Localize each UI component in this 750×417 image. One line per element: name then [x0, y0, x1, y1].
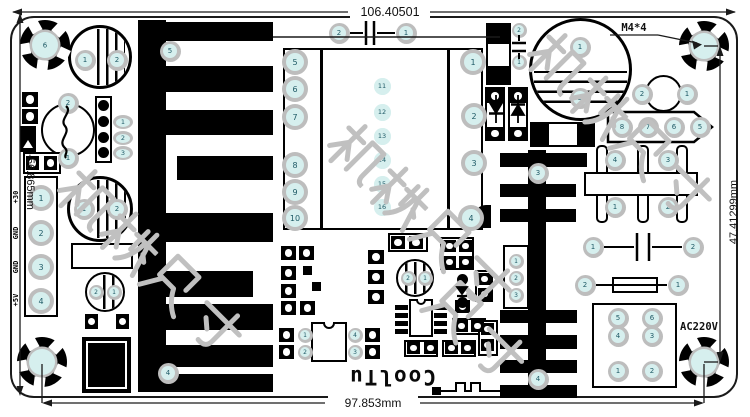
- pad: 10: [282, 205, 308, 231]
- pad: 5: [690, 117, 711, 138]
- pad: 2: [107, 50, 128, 71]
- footprint-block: [532, 124, 549, 145]
- mount-spec-label: M4*4: [608, 22, 660, 34]
- footprint-pad: [487, 89, 503, 103]
- footprint-pad: [510, 127, 526, 140]
- footprint-pad: [455, 320, 468, 332]
- pad: 1: [608, 361, 629, 382]
- pad: 1: [107, 285, 122, 300]
- to220-body: [311, 322, 347, 362]
- pad: 1: [418, 271, 433, 286]
- pad: 1: [509, 254, 524, 269]
- output-pin-label-2: GND: [12, 218, 22, 248]
- pad: 2: [570, 88, 591, 109]
- footprint-outline: [612, 277, 658, 293]
- footprint-block: [520, 387, 529, 395]
- footprint-pad: [279, 328, 294, 342]
- footprint-pad: [391, 236, 405, 249]
- footprint-block: [488, 66, 509, 85]
- pad: 2: [461, 103, 487, 129]
- footprint-pad: [300, 301, 315, 315]
- mount-hole: [676, 18, 732, 74]
- pad: 3: [509, 288, 524, 303]
- pad: 2: [298, 345, 313, 360]
- pad: 3: [461, 150, 487, 176]
- footprint-hole: [98, 116, 109, 127]
- pad: 1: [605, 197, 626, 218]
- footprint-pad: [478, 273, 491, 285]
- pad: 4: [28, 288, 54, 314]
- pad: 2: [658, 197, 679, 218]
- ac-input-label: AC220V: [672, 321, 726, 333]
- pad: 2: [632, 84, 653, 105]
- footprint-pad: [368, 290, 384, 304]
- footprint-block: [577, 124, 593, 145]
- pad: 1: [668, 275, 689, 296]
- output-pin-label-4: +5V: [12, 285, 22, 315]
- footprint-pad: [365, 328, 380, 342]
- mount-hole: [676, 334, 732, 390]
- pad: 4: [348, 328, 363, 343]
- pad: 2: [107, 199, 128, 220]
- soic8-notch: [416, 299, 426, 305]
- pad: 1: [570, 37, 591, 58]
- pad: 1: [396, 23, 417, 44]
- footprint-pad: [407, 342, 420, 354]
- pad: 15: [374, 176, 391, 193]
- relay-block: [82, 337, 131, 393]
- footprint-pad: [409, 236, 423, 249]
- footprint-hole: [98, 132, 109, 143]
- footprint-pad: [281, 246, 296, 260]
- pad: 2: [642, 361, 663, 382]
- pad: 2: [512, 23, 527, 38]
- pad: 1: [460, 49, 486, 75]
- pad: 3: [348, 345, 363, 360]
- footprint-pad: [481, 339, 494, 351]
- pad: 2: [58, 93, 79, 114]
- footprint-pad: [116, 314, 129, 329]
- brand-text: CoolTu: [333, 365, 451, 389]
- pad: 1: [75, 50, 96, 71]
- pad: 3: [113, 146, 133, 160]
- footprint-outline: [71, 243, 133, 269]
- pad: 4: [608, 326, 629, 347]
- pad: 3: [658, 150, 679, 171]
- pad: 4: [605, 150, 626, 171]
- footprint-hole: [98, 147, 109, 158]
- footprint-pad: [445, 342, 458, 354]
- pad: 1: [677, 84, 698, 105]
- footprint-pad: [299, 246, 314, 260]
- mount-hole: [14, 334, 70, 390]
- dimension-right: 47.41299mm: [728, 172, 740, 252]
- ac-input-connector: [592, 303, 677, 388]
- footprint-pad: [459, 240, 472, 252]
- footprint-pad: [443, 240, 456, 252]
- footprint-pad: [487, 127, 503, 140]
- footprint-pad: [481, 323, 494, 335]
- footprint-pad: [424, 342, 437, 354]
- footprint-pad: [22, 92, 38, 107]
- footprint-pad: [368, 270, 384, 284]
- transformer-divider-right: [447, 48, 450, 230]
- pad: 7: [638, 117, 659, 138]
- pad: 16: [374, 199, 391, 216]
- pad: 4: [528, 369, 549, 390]
- pad: 14: [374, 152, 391, 169]
- pad: 6: [664, 117, 685, 138]
- footprint-block: [312, 282, 321, 291]
- pad: 1: [58, 148, 79, 169]
- soic8-body: [409, 299, 433, 337]
- footprint-pad: [22, 109, 38, 124]
- mount-hole: 6: [17, 17, 73, 73]
- pad: 2: [113, 131, 133, 145]
- output-pin-label-1: +30: [12, 182, 22, 212]
- pad: 7: [282, 104, 308, 130]
- pad: 1: [512, 55, 527, 70]
- pad: 11: [374, 78, 391, 95]
- footprint-pad: [279, 345, 294, 359]
- pad: 2: [89, 285, 104, 300]
- footprint-pad: [443, 256, 456, 268]
- pad: 2: [329, 23, 350, 44]
- footprint-pad: [44, 156, 57, 170]
- pad: 2: [401, 271, 416, 286]
- transformer-divider-left: [320, 48, 323, 230]
- footprint-pad: [365, 345, 380, 359]
- footprint-block: [488, 25, 509, 44]
- footprint-block: [303, 266, 312, 275]
- pad: 4: [458, 205, 484, 231]
- pad: 3: [28, 254, 54, 280]
- pad: 3: [528, 163, 549, 184]
- output-pin-label-3: GND: [12, 252, 22, 282]
- pad: 8: [282, 152, 308, 178]
- footprint-hole: [98, 100, 109, 111]
- pad: 2: [509, 271, 524, 286]
- pad: 2: [683, 237, 704, 258]
- pad: 6: [282, 76, 308, 102]
- footprint-pad: [461, 342, 474, 354]
- pad: 2: [575, 275, 596, 296]
- footprint-pad: [510, 89, 526, 103]
- dimension-bottom: 97.853mm: [328, 396, 418, 410]
- pad: 13: [374, 128, 391, 145]
- pad: 5: [282, 49, 308, 75]
- pad: 1: [298, 328, 313, 343]
- svg-text:6: 6: [43, 42, 48, 50]
- dimension-left: -56.865mm: [24, 146, 36, 218]
- pad: 1: [113, 115, 133, 129]
- footprint-hole: [457, 297, 468, 308]
- pcb-layout-canvas: 2112542112312341221567891012341112131415…: [0, 0, 750, 417]
- pad: 1: [583, 237, 604, 258]
- to220-notch: [323, 322, 335, 329]
- footprint-hole: [457, 274, 468, 285]
- pad: 12: [374, 104, 391, 121]
- footprint-pad: [281, 284, 296, 298]
- footprint-pad: [478, 288, 491, 300]
- footprint-pad: [459, 256, 472, 268]
- pad: 2: [28, 220, 54, 246]
- pad: 9: [282, 179, 308, 205]
- pad: 8: [612, 117, 633, 138]
- pad: 5: [160, 41, 181, 62]
- dimension-top: 106.40501: [350, 5, 430, 19]
- pad: 3: [642, 326, 663, 347]
- footprint-pad: [368, 250, 384, 264]
- pad: 1: [74, 199, 95, 220]
- pad: 4: [158, 363, 179, 384]
- footprint-pad: [85, 314, 98, 329]
- footprint-pad: [281, 266, 296, 280]
- footprint-pad: [281, 301, 296, 315]
